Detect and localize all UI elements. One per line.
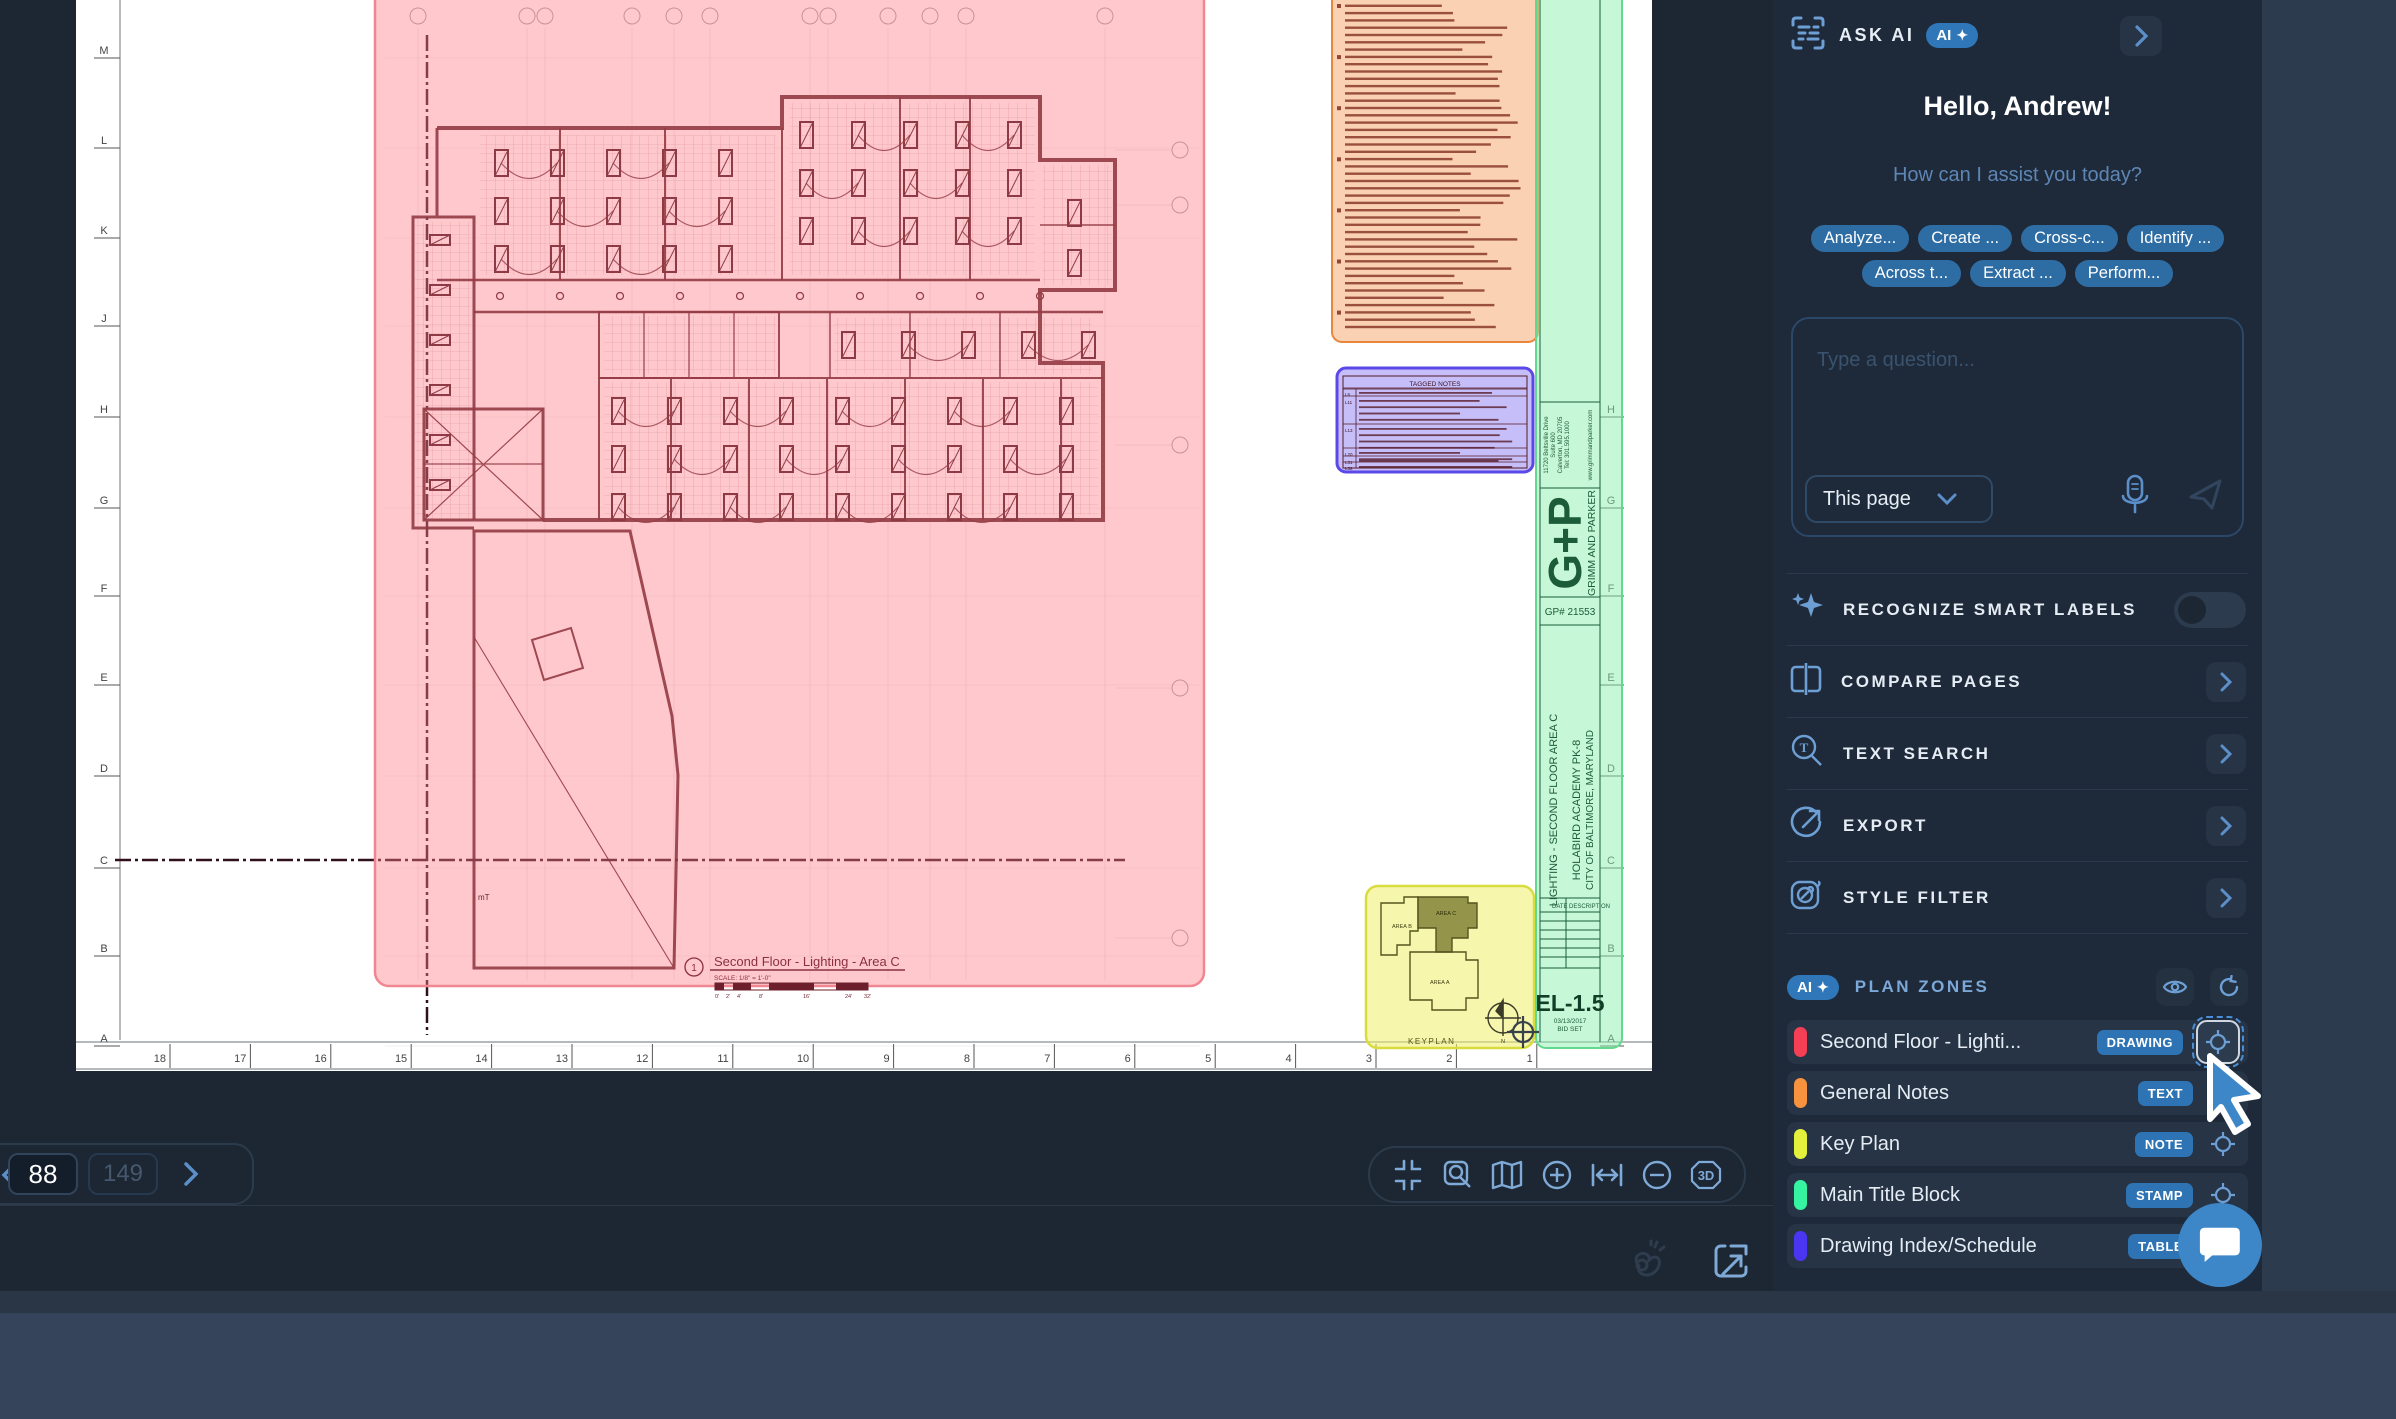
sidebar-title: ASK AI [1839, 25, 1914, 46]
export-icon [1789, 805, 1825, 846]
chevron-down-icon [1937, 493, 1957, 506]
zone-name: Key Plan [1820, 1133, 1900, 1156]
suggestion-chip[interactable]: Analyze... [1811, 225, 1909, 252]
export-open-button[interactable] [2206, 806, 2246, 846]
plan-zone-overlay-title-block[interactable]: 11720 Beltsville DriveSuite 600Calverton… [1535, 0, 1622, 1048]
locate-zone-button[interactable] [2206, 1076, 2240, 1110]
svg-text:16: 16 [315, 1053, 327, 1065]
zone-type-badge: DRAWING [2097, 1030, 2183, 1055]
plan-zones-title: PLAN ZONES [1855, 977, 1990, 997]
fit-to-screen-button[interactable] [1388, 1155, 1428, 1195]
svg-text:6: 6 [1125, 1053, 1131, 1065]
svg-text:mT: mT [478, 893, 490, 902]
svg-text:T: T [1800, 740, 1809, 755]
plan-zone-row-1[interactable]: Second Floor - Lighti...DRAWING [1787, 1020, 2248, 1064]
locate-zone-button[interactable] [2196, 1020, 2240, 1064]
question-placeholder: Type a question... [1817, 349, 2218, 372]
text-search-icon: T [1789, 733, 1825, 774]
svg-text:BID SET: BID SET [1557, 1026, 1582, 1033]
collapse-sidebar-button[interactable] [2120, 16, 2162, 56]
svg-text:18: 18 [154, 1053, 166, 1065]
svg-text:AREA C: AREA C [1436, 911, 1456, 917]
chat-support-button[interactable] [2178, 1203, 2262, 1287]
svg-text:TAGGED NOTES: TAGGED NOTES [1409, 381, 1461, 388]
svg-text:3: 3 [1366, 1053, 1372, 1065]
svg-text:3D: 3D [1698, 1168, 1715, 1183]
svg-text:SCALE: 1/8" = 1'-0": SCALE: 1/8" = 1'-0" [714, 975, 771, 982]
export-row[interactable]: EXPORT [1787, 790, 2248, 862]
svg-text:D: D [100, 763, 108, 775]
toggle-zones-visibility-button[interactable] [2156, 968, 2194, 1006]
overview-map-button[interactable] [1487, 1155, 1527, 1195]
svg-text:J: J [101, 313, 107, 325]
zone-name: Second Floor - Lighti... [1820, 1031, 2021, 1054]
ai-badge: AI✦ [1787, 975, 1839, 1000]
gesture-snap-icon[interactable] [1625, 1238, 1671, 1289]
suggestion-chip[interactable]: Perform... [2075, 260, 2173, 287]
sidebar-header: ASK AI AI✦ [1787, 0, 2248, 63]
svg-text:2': 2' [726, 994, 730, 1000]
open-external-icon[interactable] [1711, 1240, 1753, 1287]
svg-text:9: 9 [883, 1053, 889, 1065]
plan-zone-row-3[interactable]: Key PlanNOTE [1787, 1122, 2248, 1166]
suggestion-chip[interactable]: Cross-c... [2021, 225, 2118, 252]
zone-type-badge: NOTE [2135, 1132, 2193, 1157]
svg-text:Second Floor - Lighting - Area: Second Floor - Lighting - Area C [714, 954, 900, 969]
compare-pages-row[interactable]: COMPARE PAGES [1787, 646, 2248, 718]
svg-text:KEYPLAN: KEYPLAN [1408, 1037, 1455, 1046]
bottom-band [0, 1313, 2396, 1419]
svg-text:1: 1 [1527, 1053, 1533, 1065]
svg-text:Suite 600: Suite 600 [1551, 432, 1557, 458]
suggestion-chips-row2: Across t...Extract ...Perform... [1787, 260, 2248, 287]
svg-text:LIGHTING - SECOND FLOOR AREA C: LIGHTING - SECOND FLOOR AREA C [1548, 714, 1560, 907]
plan-zones-header: AI✦ PLAN ZONES [1787, 968, 2248, 1006]
svg-text:8: 8 [964, 1053, 970, 1065]
zone-color-bar [1794, 1129, 1807, 1159]
suggestion-chip[interactable]: Extract ... [1970, 260, 2066, 287]
question-input[interactable]: Type a question... This page [1791, 317, 2244, 537]
svg-text:DESCRIPTION: DESCRIPTION [1569, 904, 1610, 910]
svg-text:32': 32' [864, 994, 871, 1000]
background-panel [2262, 0, 2396, 1291]
svg-text:M: M [99, 45, 108, 57]
zone-color-bar [1794, 1180, 1807, 1210]
svg-text:L13: L13 [1345, 428, 1353, 433]
feature-list: RECOGNIZE SMART LABELS COMPARE PAGES [1787, 573, 2248, 934]
ask-ai-scan-icon [1789, 14, 1827, 57]
svg-text:F: F [101, 583, 108, 595]
recognize-smart-labels-row[interactable]: RECOGNIZE SMART LABELS [1787, 574, 2248, 646]
three-d-view-button[interactable]: 3D [1686, 1155, 1726, 1195]
zone-color-bar [1794, 1078, 1807, 1108]
svg-text:AREA B: AREA B [1392, 924, 1412, 930]
text-search-row[interactable]: T TEXT SEARCH [1787, 718, 2248, 790]
compare-pages-open-button[interactable] [2206, 662, 2246, 702]
zoom-out-button[interactable] [1637, 1155, 1677, 1195]
svg-text:EL-1.5: EL-1.5 [1535, 990, 1604, 1016]
zone-type-badge: STAMP [2126, 1183, 2193, 1208]
smart-labels-toggle[interactable] [2174, 592, 2246, 628]
greeting-text: Hello, Andrew! [1787, 91, 2248, 122]
svg-text:N: N [1501, 1039, 1505, 1045]
svg-text:4: 4 [1285, 1053, 1291, 1065]
suggestion-chip[interactable]: Create ... [1918, 225, 2012, 252]
plan-zone-list: Second Floor - Lighti...DRAWINGGeneral N… [1787, 1020, 2248, 1268]
next-page-button[interactable] [168, 1153, 214, 1195]
style-filter-open-button[interactable] [2206, 878, 2246, 918]
svg-text:Calverton, MD 20705: Calverton, MD 20705 [1558, 416, 1564, 473]
svg-text:7: 7 [1044, 1053, 1050, 1065]
document-canvas[interactable]: MLKJHGFEDCBAHGFEDCBA18171615141312111098… [0, 0, 1773, 1290]
svg-text:G+P: G+P [1539, 496, 1591, 589]
scope-selector[interactable]: This page [1805, 475, 1993, 523]
svg-text:DATE: DATE [1552, 904, 1568, 910]
plan-zone-overlay-key-plan[interactable]: AREA B AREA C AREA A KEYPLAN N [1366, 886, 1534, 1048]
text-search-open-button[interactable] [2206, 734, 2246, 774]
plan-zone-row-2[interactable]: General NotesTEXT [1787, 1071, 2248, 1115]
svg-text:4': 4' [737, 994, 741, 1000]
assist-prompt: How can I assist you today? [1787, 164, 2248, 187]
svg-text:CITY OF BALTIMORE, MARYLAND: CITY OF BALTIMORE, MARYLAND [1585, 730, 1596, 890]
suggestion-chip[interactable]: Identify ... [2127, 225, 2225, 252]
svg-text:HOLABIRD ACADEMY PK-8: HOLABIRD ACADEMY PK-8 [1571, 740, 1583, 880]
floor-plan-drawing: MLKJHGFEDCBAHGFEDCBA18171615141312111098… [76, 0, 1652, 1071]
app-window: MLKJHGFEDCBAHGFEDCBA18171615141312111098… [0, 0, 2396, 1419]
svg-text:24': 24' [845, 994, 852, 1000]
svg-text:14: 14 [475, 1053, 487, 1065]
svg-text:2: 2 [1446, 1053, 1452, 1065]
svg-text:8': 8' [759, 994, 763, 1000]
plan-zone-overlay-drawing[interactable] [375, 0, 1204, 986]
svg-text:11720 Beltsville Drive: 11720 Beltsville Drive [1544, 416, 1550, 474]
lower-band [0, 1291, 2396, 1313]
suggestion-chip[interactable]: Across t... [1862, 260, 1961, 287]
svg-text:GRIMM AND PARKER: GRIMM AND PARKER [1586, 490, 1598, 596]
view-toolbar: 3D [1368, 1146, 1746, 1203]
svg-text:0': 0' [715, 994, 719, 1000]
total-pages: 149 [88, 1153, 158, 1195]
svg-text:C: C [100, 855, 108, 867]
plan-zone-overlay-tagged-notes[interactable]: TAGGED NOTES L5L11L13L20L31L32 [1337, 368, 1533, 472]
svg-text:10: 10 [797, 1053, 809, 1065]
svg-text:12: 12 [636, 1053, 648, 1065]
style-filter-icon [1789, 877, 1825, 918]
zone-type-badge: TEXT [2138, 1081, 2193, 1106]
current-page-input[interactable]: 88 [8, 1153, 78, 1195]
plan-zone-row-4[interactable]: Main Title BlockSTAMP [1787, 1173, 2248, 1217]
zone-name: Main Title Block [1820, 1184, 1960, 1207]
svg-text:5: 5 [1205, 1053, 1211, 1065]
zoom-region-button[interactable] [1438, 1155, 1478, 1195]
microphone-button[interactable] [2120, 474, 2150, 521]
svg-text:1: 1 [691, 963, 697, 974]
bottom-strip [0, 1205, 1773, 1290]
svg-text:L31: L31 [1345, 460, 1353, 465]
chat-bubble-icon [2198, 1224, 2242, 1266]
zone-name: Drawing Index/Schedule [1820, 1235, 2037, 1258]
svg-text:16': 16' [803, 994, 810, 1000]
send-button[interactable] [2186, 475, 2226, 520]
refresh-zones-button[interactable] [2210, 968, 2248, 1006]
svg-text:K: K [100, 225, 108, 237]
svg-text:www.grimmandparker.com: www.grimmandparker.com [1588, 410, 1594, 482]
svg-text:11: 11 [717, 1053, 728, 1065]
svg-text:H: H [100, 404, 108, 416]
sparkle-icon: ✦ [1817, 979, 1829, 996]
sparkles-icon [1789, 589, 1825, 630]
svg-text:13: 13 [556, 1053, 568, 1065]
svg-text:G: G [100, 495, 109, 507]
drawing-page[interactable]: MLKJHGFEDCBAHGFEDCBA18171615141312111098… [76, 0, 1652, 1071]
svg-text:E: E [100, 672, 107, 684]
svg-text:B: B [100, 943, 107, 955]
suggestion-chips-row1: Analyze...Create ...Cross-c...Identify .… [1787, 225, 2248, 252]
sparkle-icon: ✦ [1956, 27, 1968, 44]
page-navigation: 88 149 [0, 1143, 254, 1205]
zone-color-bar [1794, 1027, 1807, 1057]
style-filter-row[interactable]: STYLE FILTER [1787, 862, 2248, 934]
ask-ai-sidebar: ASK AI AI✦ Hello, Andrew! How can I assi… [1773, 0, 2262, 1291]
svg-text:L11: L11 [1345, 400, 1353, 405]
fit-width-button[interactable] [1587, 1155, 1627, 1195]
svg-text:GP# 21553: GP# 21553 [1545, 607, 1596, 618]
svg-text:17: 17 [234, 1053, 246, 1065]
compare-pages-icon [1789, 661, 1823, 702]
svg-text:L32: L32 [1345, 466, 1353, 471]
svg-text:A: A [100, 1033, 108, 1045]
svg-text:Tel: 301.595.1000: Tel: 301.595.1000 [1565, 420, 1571, 468]
ai-badge: AI✦ [1926, 23, 1978, 48]
zone-color-bar [1794, 1231, 1807, 1261]
zone-name: General Notes [1820, 1082, 1949, 1105]
svg-text:15: 15 [395, 1053, 407, 1065]
plan-zone-overlay-general-notes[interactable] [1332, 0, 1538, 342]
svg-text:03/13/2017: 03/13/2017 [1554, 1018, 1587, 1025]
locate-zone-button[interactable] [2206, 1127, 2240, 1161]
svg-text:L: L [101, 135, 107, 147]
zoom-in-button[interactable] [1537, 1155, 1577, 1195]
svg-text:AREA A: AREA A [1430, 980, 1450, 986]
